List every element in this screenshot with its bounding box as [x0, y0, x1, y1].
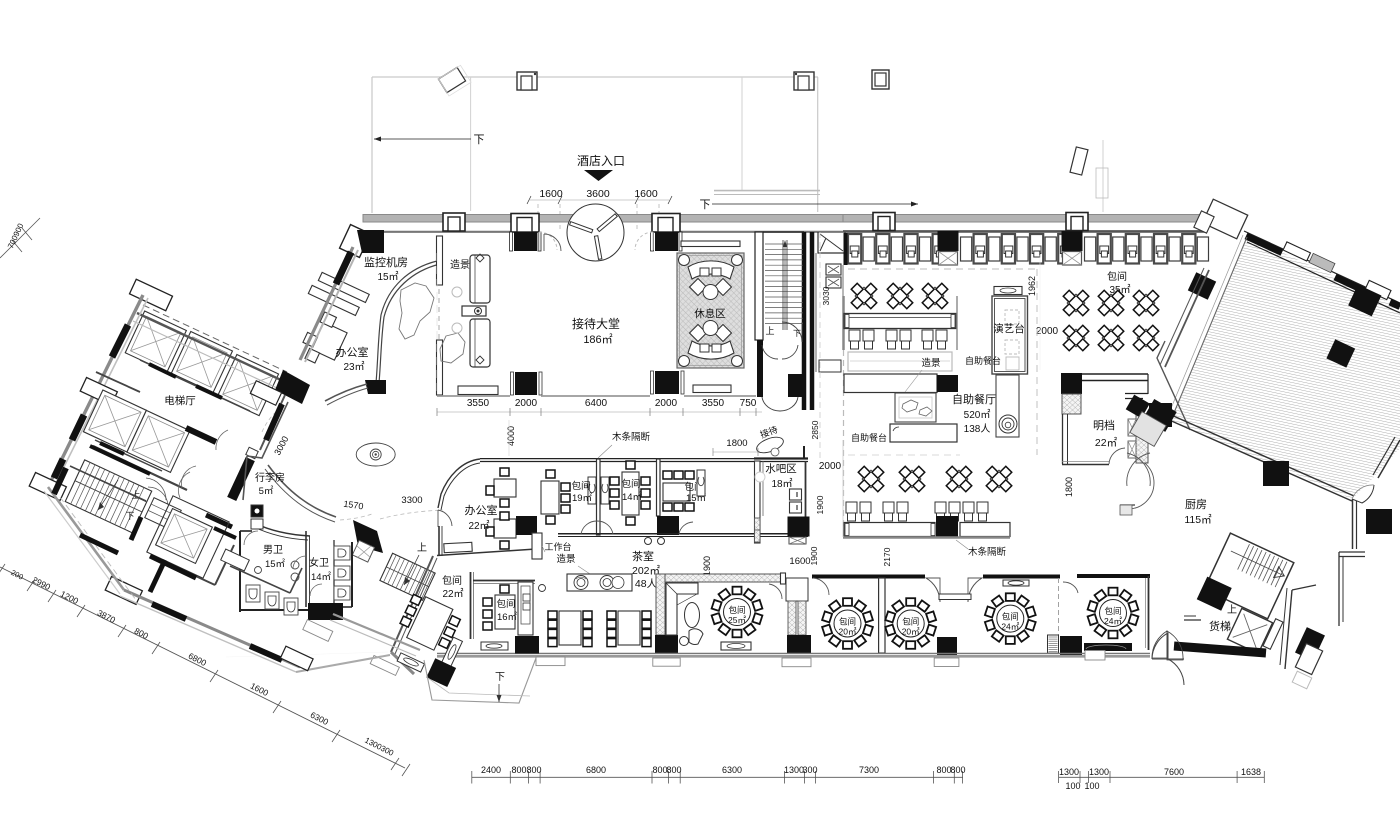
svg-text:男卫: 男卫	[263, 544, 283, 556]
svg-text:7300: 7300	[859, 765, 879, 775]
svg-text:300: 300	[802, 765, 817, 775]
svg-text:下: 下	[495, 672, 505, 683]
svg-text:16㎡: 16㎡	[497, 612, 518, 623]
svg-text:3600: 3600	[586, 188, 610, 200]
svg-text:木条隔断: 木条隔断	[612, 431, 651, 443]
svg-text:24㎡: 24㎡	[1001, 622, 1019, 632]
svg-text:上: 上	[765, 326, 774, 336]
svg-text:15㎡: 15㎡	[377, 271, 398, 283]
svg-text:100: 100	[1065, 781, 1080, 791]
svg-text:下: 下	[700, 199, 711, 211]
svg-text:工作台: 工作台	[544, 541, 571, 552]
svg-text:20㎡: 20㎡	[902, 627, 920, 637]
svg-text:包间: 包间	[1107, 270, 1127, 283]
svg-text:24㎡: 24㎡	[1104, 616, 1122, 626]
svg-text:包间: 包间	[728, 605, 745, 615]
svg-text:包间: 包间	[1002, 612, 1019, 622]
svg-text:800: 800	[652, 765, 667, 775]
svg-text:800: 800	[936, 765, 951, 775]
svg-text:造景: 造景	[450, 258, 470, 271]
svg-text:自助餐厅: 自助餐厅	[952, 392, 996, 406]
svg-text:监控机房: 监控机房	[364, 255, 408, 269]
svg-text:2850: 2850	[810, 420, 820, 439]
svg-text:1900: 1900	[702, 556, 712, 576]
svg-text:休息区: 休息区	[694, 307, 726, 320]
svg-text:1900: 1900	[809, 546, 819, 565]
svg-text:18㎡: 18㎡	[771, 478, 792, 490]
svg-text:木条隔断: 木条隔断	[968, 546, 1007, 558]
svg-text:1600: 1600	[789, 556, 810, 567]
svg-text:包间: 包间	[839, 617, 856, 627]
svg-text:2170: 2170	[882, 547, 892, 566]
svg-text:下: 下	[474, 134, 485, 146]
svg-text:办公室: 办公室	[465, 503, 498, 517]
svg-text:1800: 1800	[726, 438, 747, 449]
svg-text:1962: 1962	[1027, 276, 1037, 296]
svg-text:14㎡: 14㎡	[622, 492, 643, 503]
svg-text:上: 上	[1227, 604, 1237, 616]
svg-text:20㎡: 20㎡	[839, 627, 857, 637]
svg-text:22㎡: 22㎡	[442, 588, 463, 600]
svg-text:3300: 3300	[401, 495, 422, 506]
svg-text:包间: 包间	[1104, 606, 1121, 616]
svg-text:下: 下	[125, 511, 134, 521]
svg-text:1900: 1900	[815, 495, 825, 514]
svg-text:包间: 包间	[621, 478, 640, 490]
svg-text:3550: 3550	[702, 398, 725, 409]
svg-text:行李房: 行李房	[255, 471, 285, 484]
svg-text:800: 800	[666, 765, 681, 775]
svg-text:自助餐台: 自助餐台	[851, 432, 887, 443]
svg-text:6400: 6400	[585, 398, 608, 409]
svg-text:造景: 造景	[921, 357, 940, 369]
svg-text:包间: 包间	[902, 617, 919, 627]
svg-text:15㎡: 15㎡	[265, 559, 286, 570]
svg-text:1800: 1800	[1064, 477, 1074, 497]
svg-text:2000: 2000	[655, 398, 678, 409]
svg-text:115㎡: 115㎡	[1184, 514, 1212, 526]
svg-text:包间: 包间	[571, 480, 590, 492]
svg-text:茶室: 茶室	[632, 549, 654, 563]
svg-text:25㎡: 25㎡	[728, 615, 746, 625]
svg-text:接待大堂: 接待大堂	[572, 316, 620, 331]
svg-text:4000: 4000	[506, 426, 516, 446]
svg-text:2000: 2000	[1036, 326, 1059, 337]
svg-text:演艺台: 演艺台	[993, 322, 1025, 335]
svg-text:14㎡: 14㎡	[311, 572, 332, 583]
svg-text:800: 800	[950, 765, 965, 775]
svg-text:750: 750	[740, 398, 757, 409]
svg-text:上: 上	[417, 542, 427, 554]
svg-text:包间: 包间	[442, 574, 462, 587]
svg-text:5㎡: 5㎡	[259, 486, 274, 497]
svg-text:138人: 138人	[964, 423, 991, 435]
svg-text:19㎡: 19㎡	[572, 493, 593, 504]
svg-text:3550: 3550	[467, 398, 490, 409]
svg-text:1300: 1300	[1089, 767, 1109, 777]
svg-text:23㎡: 23㎡	[343, 361, 364, 373]
svg-text:水吧区: 水吧区	[765, 463, 797, 475]
svg-text:186㎡: 186㎡	[583, 333, 612, 346]
svg-text:酒店入口: 酒店入口	[577, 154, 625, 168]
svg-text:2400: 2400	[481, 765, 501, 775]
svg-text:48人: 48人	[635, 578, 658, 590]
svg-text:包间: 包间	[496, 598, 515, 610]
svg-text:520㎡: 520㎡	[964, 409, 991, 421]
svg-text:1300: 1300	[1059, 767, 1079, 777]
svg-text:1300: 1300	[784, 765, 804, 775]
svg-text:电梯厅: 电梯厅	[164, 394, 196, 407]
svg-text:6300: 6300	[722, 765, 742, 775]
svg-text:2000: 2000	[819, 461, 842, 472]
svg-text:800: 800	[526, 765, 541, 775]
svg-text:下: 下	[793, 329, 801, 338]
svg-text:22㎡: 22㎡	[468, 520, 489, 532]
svg-text:22㎡: 22㎡	[1095, 437, 1118, 449]
svg-text:货梯: 货梯	[1209, 619, 1231, 633]
svg-text:办公室: 办公室	[336, 345, 369, 359]
svg-text:7600: 7600	[1164, 767, 1184, 777]
svg-text:800: 800	[511, 765, 526, 775]
svg-text:1600: 1600	[539, 188, 563, 200]
svg-text:自助餐台: 自助餐台	[965, 355, 1001, 366]
svg-text:2000: 2000	[515, 398, 538, 409]
svg-text:1638: 1638	[1241, 767, 1261, 777]
svg-text:造景: 造景	[556, 553, 575, 565]
svg-text:3030: 3030	[821, 286, 831, 305]
svg-text:女卫: 女卫	[309, 556, 329, 569]
svg-text:厨房: 厨房	[1185, 498, 1207, 511]
svg-text:明档: 明档	[1093, 418, 1115, 432]
svg-text:6800: 6800	[586, 765, 606, 775]
svg-text:100: 100	[1084, 781, 1099, 791]
